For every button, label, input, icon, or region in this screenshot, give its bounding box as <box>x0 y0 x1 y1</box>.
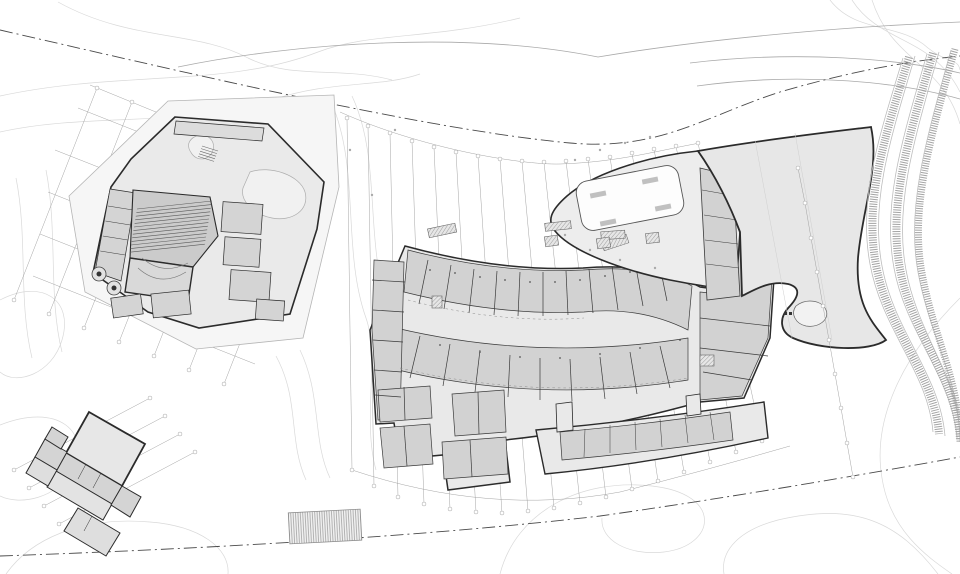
entrance-canopy <box>427 223 456 238</box>
terrace-marker <box>789 312 792 315</box>
site-plan <box>0 0 960 574</box>
stair-core <box>596 237 610 249</box>
stair-core <box>700 355 714 366</box>
step-band <box>872 57 939 434</box>
parking-pad <box>288 509 362 544</box>
contour <box>332 104 376 470</box>
stair-core <box>646 232 660 243</box>
contour <box>300 350 330 478</box>
connector <box>686 394 701 416</box>
step-curve <box>914 50 960 442</box>
contour <box>852 0 960 92</box>
contour <box>872 0 960 124</box>
east-room <box>223 237 261 267</box>
step-curve <box>878 56 945 436</box>
annex-building <box>26 412 145 556</box>
site-plan-canvas <box>0 0 960 574</box>
contour <box>830 0 960 70</box>
contour <box>276 356 306 480</box>
contour <box>0 18 520 96</box>
east-room <box>221 202 263 235</box>
grid-line <box>345 116 354 472</box>
annex-south-block <box>64 508 120 556</box>
east-room <box>255 299 284 321</box>
south-room <box>111 294 143 318</box>
stair-core <box>544 235 558 247</box>
south-room <box>151 290 191 318</box>
roads <box>178 22 960 99</box>
stair-core <box>432 296 442 308</box>
grid-dim-arc-top <box>340 112 700 164</box>
contour <box>16 178 32 358</box>
contour <box>58 2 392 80</box>
connector <box>556 402 573 432</box>
sw-room <box>442 437 508 479</box>
road-edge <box>178 22 960 67</box>
east-room <box>229 270 271 303</box>
turntable-hub <box>97 272 102 277</box>
turntable-hub <box>112 286 117 291</box>
terrace-marker <box>784 312 787 315</box>
contour <box>500 485 705 574</box>
contour <box>723 514 938 574</box>
landscape-steps <box>866 49 960 443</box>
